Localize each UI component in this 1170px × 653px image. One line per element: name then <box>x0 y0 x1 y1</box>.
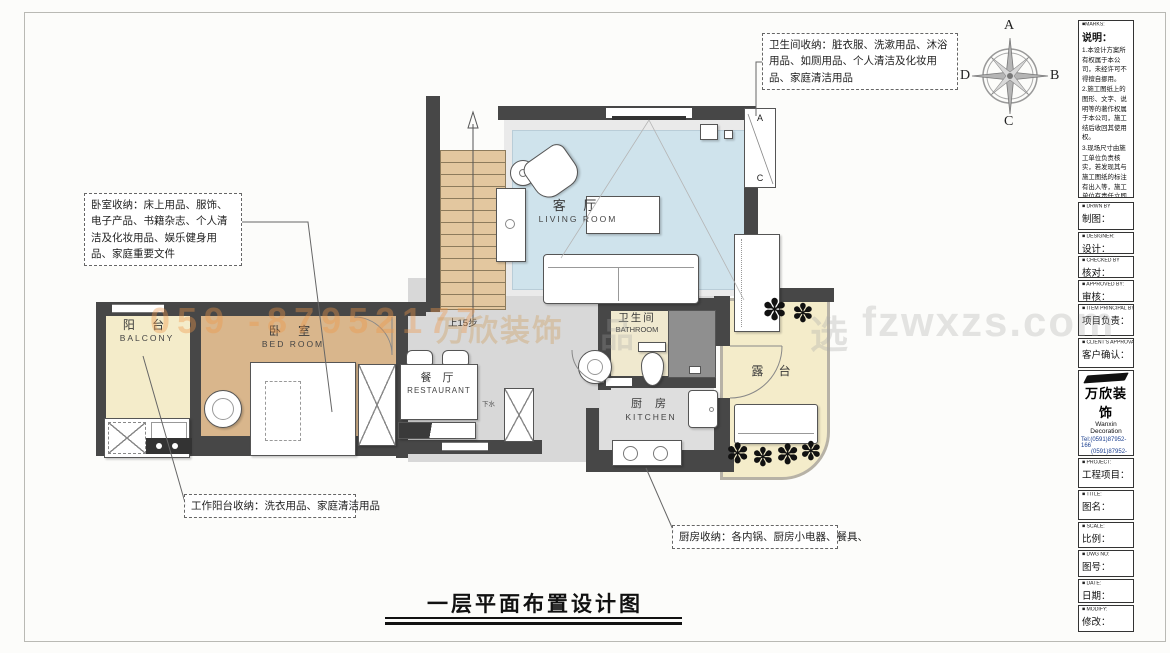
titleblock-dwg-no: ■ DWG NO: 图号： <box>1078 550 1134 577</box>
bathroom-label-zh: 卫生间 <box>606 312 668 325</box>
bed <box>250 362 356 456</box>
company-tel2: (0591)87952-177 <box>1081 449 1131 456</box>
stairs-up-label: 上15步 <box>448 315 478 329</box>
drawn-by-zh: 制图： <box>1082 211 1130 225</box>
drawn-by-en: ■ DRWN BY <box>1082 204 1123 209</box>
modify-zh: 修改： <box>1082 614 1130 628</box>
restaurant-label-en: RESTAURANT <box>401 386 477 396</box>
bed-blanket <box>265 381 301 441</box>
shelf-knob <box>505 219 515 229</box>
plant-icon: ✽ <box>776 441 799 469</box>
washbasin <box>578 350 612 384</box>
kitchen-label-en: KITCHEN <box>608 412 694 423</box>
titleblock-project: ■ PROJECT: 工程项目： <box>1078 458 1134 488</box>
titleblock-client-approval: ■ CLIENT'S APPROVAL: 客户确认： <box>1078 338 1134 368</box>
approved-by-en: ■ APPROVED BY: <box>1082 282 1123 287</box>
restaurant-label: 餐 厅 RESTAURANT <box>401 372 477 396</box>
compass-e-label: B <box>1050 68 1059 84</box>
floorplan-sheet: A C <box>0 0 1170 653</box>
project-en: ■ PROJECT: <box>1082 460 1123 465</box>
sheet-title-underline <box>385 617 682 619</box>
burner <box>653 446 668 461</box>
scale-en: ■ SCALE: <box>1082 524 1123 529</box>
drawing-title-en: ■ TITLE: <box>1082 492 1123 497</box>
tv <box>612 116 686 120</box>
duct-shaft <box>504 388 534 442</box>
dwg-no-en: ■ DWG NO: <box>1082 552 1123 557</box>
wardrobe <box>358 364 396 446</box>
designer-en: ■ DESIGNER: <box>1082 234 1123 239</box>
sofa-seat-line <box>548 267 694 268</box>
laundry-knob-strip <box>146 438 192 454</box>
client-approval-en: ■ CLIENT'S APPROVAL: <box>1082 340 1123 345</box>
titleblock-title: ■ TITLE: 图名： <box>1078 490 1134 520</box>
bathroom-storage-note: 卫生间收纳：脏衣服、洗漱用品、沐浴用品、如厕用品、个人清洁及化妆用品、家庭清洁用… <box>762 33 958 90</box>
knob <box>156 443 162 449</box>
marks-note-3: 3.现场尺寸由施工单位负责核实，若发现其与施工图纸的标注有出入等，施工单位有责任… <box>1082 144 1130 198</box>
date-zh: 日期： <box>1082 588 1130 602</box>
bedroom-label: 卧 室 BED ROOM <box>238 324 348 350</box>
compass-s-label: C <box>1004 114 1013 130</box>
client-approval-zh: 客户确认： <box>1082 347 1130 361</box>
washer <box>108 422 146 454</box>
date-en: ■ DATE: <box>1082 581 1123 586</box>
company-tel1: Tel:(0591)87952-166 <box>1081 437 1131 449</box>
dwg-no-zh: 图号： <box>1082 559 1130 573</box>
scale-zh: 比例： <box>1082 531 1130 545</box>
terrace-label-zh: 露 台 <box>744 364 804 379</box>
window-tag-ac: A C <box>744 108 776 188</box>
living-room-label-zh: 客 厅 <box>518 198 638 214</box>
project-zh: 工程项目： <box>1082 467 1130 481</box>
titleblock-drawn-by: ■ DRWN BY 制图： <box>1078 202 1134 230</box>
plant-icon: ✽ <box>726 440 749 468</box>
titleblock-company: 万欣装饰 Wanxin Decoration Tel:(0591)87952-1… <box>1078 370 1134 456</box>
dining-window <box>442 442 488 451</box>
living-room-label: 客 厅 LIVING ROOM <box>518 198 638 225</box>
company-brush-icon <box>1083 373 1129 384</box>
media-device-small <box>724 130 733 139</box>
designer-zh: 设计： <box>1082 241 1130 254</box>
titleblock-designer: ■ DESIGNER: 设计： <box>1078 232 1134 254</box>
balcony-window <box>112 304 164 313</box>
titleblock-principal: ■ ITEM PRINCIPAL BY: 项目负责： <box>1078 304 1134 336</box>
kitchen-storage-note: 厨房收纳：各内锅、厨房小电器、餐具、 <box>672 525 838 549</box>
sideboard <box>398 422 476 439</box>
chair-inner-arc <box>212 398 234 420</box>
cabinet-shelf-line <box>741 239 742 327</box>
terrace-label: 露 台 <box>744 364 804 379</box>
titleblock-modify: ■ MODIFY: 修改： <box>1078 605 1134 632</box>
marks-notes: 1.本设计方案所有权属于本公司，未经许可不得擅自挪用。 2.施工图纸上的图形、文… <box>1082 46 1130 198</box>
checked-by-en: ■ CHECKED BY <box>1082 258 1123 263</box>
faucet <box>709 407 714 412</box>
marks-note-2: 2.施工图纸上的图形、文字、说明等的著作权属于本公司，施工结后收回其使用权。 <box>1082 85 1130 143</box>
titleblock-scale: ■ SCALE: 比例： <box>1078 522 1134 548</box>
drain-label: 下水 <box>482 398 495 408</box>
modify-en: ■ MODIFY: <box>1082 607 1123 612</box>
compass-w-label: D <box>960 68 970 84</box>
compass-rose-icon <box>958 24 1062 128</box>
plant-icon: ✽ <box>752 444 774 470</box>
balcony-label: 阳 台 BALCONY <box>106 318 188 344</box>
wall <box>744 188 758 236</box>
bathroom-label-en: BATHROOM <box>606 325 668 334</box>
bathroom-label: 卫生间 BATHROOM <box>606 312 668 335</box>
plant-icon: ✽ <box>800 438 822 464</box>
stove <box>612 440 682 466</box>
marks-header-zh: 说明： <box>1082 29 1130 44</box>
marks-note-1: 1.本设计方案所有权属于本公司，未经许可不得擅自挪用。 <box>1082 46 1130 84</box>
wall <box>426 96 440 312</box>
sheet-title-wrap: 一层平面布置设计图 <box>385 588 685 618</box>
plant-icon: ✽ <box>792 300 814 326</box>
wall <box>190 310 201 438</box>
titleblock-date: ■ DATE: 日期： <box>1078 579 1134 603</box>
company-name-en: Wanxin Decoration <box>1081 421 1131 435</box>
principal-en: ■ ITEM PRINCIPAL BY: <box>1082 306 1123 311</box>
sheet-title-underline-thick <box>385 622 682 625</box>
compass-n-label: A <box>1004 18 1014 34</box>
wall <box>586 408 599 452</box>
wall <box>714 296 730 346</box>
sheet-title: 一层平面布置设计图 <box>427 593 643 616</box>
bedroom-label-zh: 卧 室 <box>238 324 348 339</box>
compass: A B C D <box>958 24 1062 128</box>
titleblock-approved-by: ■ APPROVED BY: 审核： <box>1078 280 1134 302</box>
checked-by-zh: 核对： <box>1082 265 1130 278</box>
titleblock-checked-by: ■ CHECKED BY 核对： <box>1078 256 1134 278</box>
approved-by-zh: 审核： <box>1082 289 1130 302</box>
kitchen-label-zh: 厨 房 <box>608 398 694 412</box>
dining-chair <box>442 350 469 365</box>
bedroom-storage-note: 卧室收纳：床上用品、服饰、电子产品、书籍杂志、个人清洁及化妆用品、娱乐健身用品、… <box>84 193 242 266</box>
marks-header-en: ■MARKS: <box>1082 22 1123 27</box>
sofa <box>543 254 699 304</box>
balcony-label-zh: 阳 台 <box>106 318 188 333</box>
dining-chair <box>406 350 433 365</box>
burner <box>623 446 638 461</box>
kitchen-label: 厨 房 KITCHEN <box>608 398 694 422</box>
window-tag-a-label: A <box>745 113 775 123</box>
drawing-title-zh: 图名： <box>1082 499 1130 513</box>
balcony-storage-note: 工作阳台收纳：洗衣用品、家庭清洁用品 <box>184 494 356 518</box>
media-device <box>700 124 718 140</box>
sofa-cushion-line <box>618 267 619 301</box>
bench-line <box>738 433 814 434</box>
window-tag-c-label: C <box>745 173 775 183</box>
titleblock-marks: ■MARKS: 说明： 1.本设计方案所有权属于本公司，未经许可不得擅自挪用。 … <box>1078 20 1134 198</box>
toilet-tank <box>638 342 666 352</box>
knob <box>172 443 178 449</box>
company-logo: 万欣装饰 <box>1081 383 1131 421</box>
living-room-label-en: LIVING ROOM <box>518 214 638 225</box>
shower-drain <box>689 366 701 374</box>
balcony-label-en: BALCONY <box>106 333 188 344</box>
bedroom-round-chair <box>204 390 242 428</box>
principal-zh: 项目负责： <box>1082 313 1130 327</box>
basin-inner <box>587 359 603 375</box>
plant-icon: ✽ <box>762 296 787 326</box>
bedroom-label-en: BED ROOM <box>238 339 348 350</box>
shower-area <box>668 310 716 378</box>
bathroom-door-gap <box>606 378 632 386</box>
restaurant-label-zh: 餐 厅 <box>401 372 477 386</box>
